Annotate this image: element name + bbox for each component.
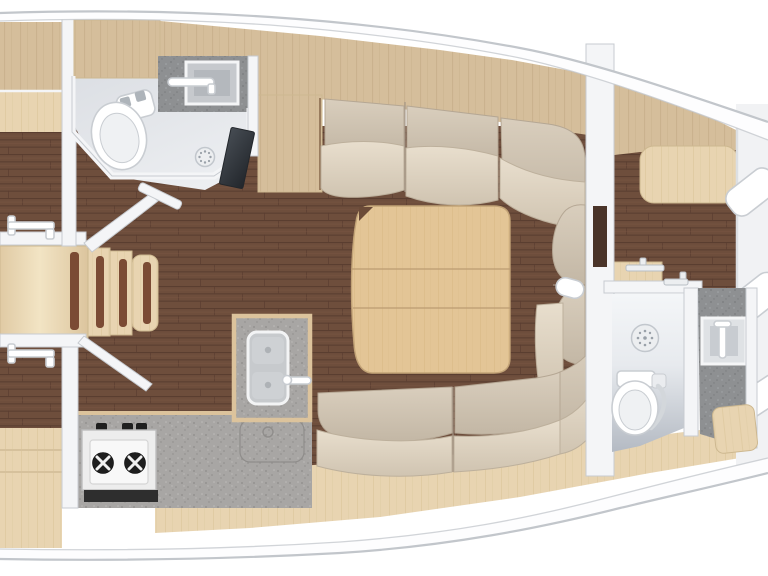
yacht-floorplan <box>0 0 768 576</box>
non-slip-strip <box>119 259 127 327</box>
settee-end-cabinet <box>258 95 322 192</box>
settee-backrest-cushion <box>318 387 452 442</box>
forward-head-divider <box>684 288 698 436</box>
aft-port-shelf <box>0 92 62 132</box>
forward-head <box>604 281 758 454</box>
non-slip-strip <box>96 256 104 328</box>
faucet-handle <box>714 321 731 327</box>
oven-vent <box>84 490 158 502</box>
forward-bulkhead <box>586 44 614 476</box>
burner <box>93 453 114 474</box>
faucet-base <box>283 376 292 385</box>
faucet-spout <box>208 84 215 94</box>
non-slip-strip <box>143 262 151 324</box>
basin-faucet <box>719 324 726 358</box>
folding-saloon-table <box>352 206 510 373</box>
aft-starboard-berth-step <box>0 428 62 548</box>
forward-cabinet <box>640 146 738 203</box>
saloon-table <box>352 206 510 373</box>
settee-seat-cushion <box>406 146 498 205</box>
aft-port-cabinet <box>0 22 62 92</box>
settee-seat-cushion <box>321 142 404 198</box>
basin-faucet <box>168 78 214 86</box>
cabin-door-panel <box>593 206 607 267</box>
sink-drain <box>265 382 271 388</box>
sink-drain <box>265 347 271 353</box>
non-slip-strip <box>70 252 79 330</box>
wood-seat <box>712 404 759 454</box>
galley-partition-wall <box>62 340 78 508</box>
burner <box>125 453 146 474</box>
towel-rail <box>626 265 664 271</box>
toilet-bowl <box>619 390 651 430</box>
shower-drain-dots <box>637 330 654 347</box>
towel-rail <box>664 279 688 285</box>
floorplan-stage <box>0 0 768 576</box>
aft-head-cabinet <box>74 20 160 78</box>
